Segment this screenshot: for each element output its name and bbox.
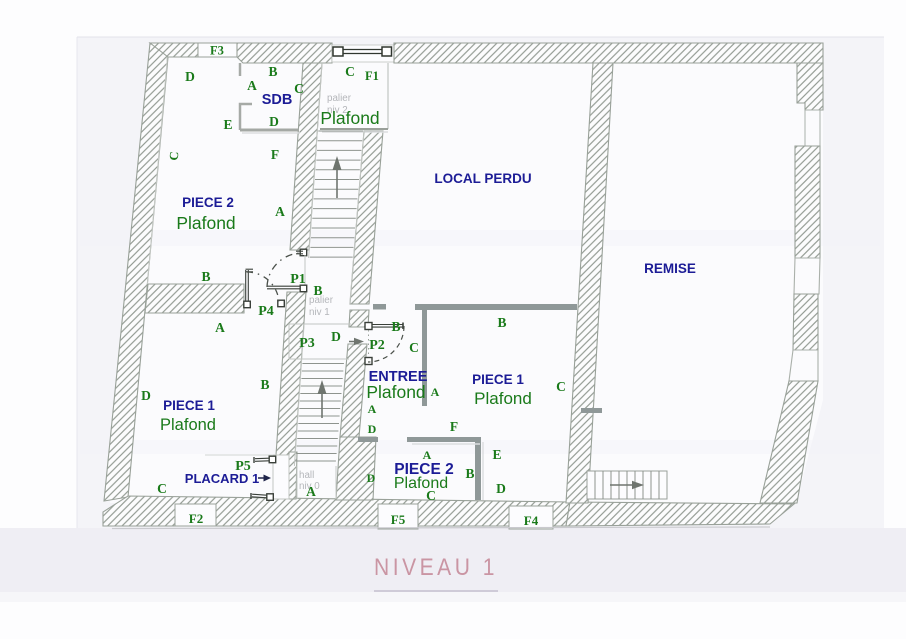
svg-text:A: A — [431, 385, 440, 399]
svg-text:palier: palier — [327, 93, 352, 104]
svg-text:C: C — [556, 379, 566, 394]
svg-text:REMISE: REMISE — [644, 261, 696, 276]
svg-text:SDB: SDB — [262, 92, 293, 108]
svg-text:NIVEAU 1: NIVEAU 1 — [374, 554, 498, 581]
svg-text:D: D — [269, 114, 279, 129]
svg-text:A: A — [423, 448, 432, 462]
svg-text:D: D — [331, 329, 341, 344]
svg-text:E: E — [492, 447, 501, 462]
svg-text:F4: F4 — [524, 513, 539, 528]
svg-text:hall: hall — [299, 470, 314, 481]
svg-text:Plafond: Plafond — [474, 389, 532, 408]
svg-text:P5: P5 — [235, 459, 251, 474]
svg-text:C: C — [426, 488, 436, 503]
svg-text:B: B — [268, 64, 277, 79]
svg-text:Plafond: Plafond — [394, 475, 448, 492]
svg-text:niv 1: niv 1 — [309, 307, 330, 318]
svg-text:F1: F1 — [365, 69, 379, 83]
svg-text:Plafond: Plafond — [320, 108, 379, 128]
svg-text:Plafond: Plafond — [176, 213, 235, 233]
svg-text:A: A — [368, 402, 377, 416]
svg-text:B: B — [201, 269, 210, 284]
svg-text:A: A — [275, 204, 285, 219]
svg-text:C: C — [345, 64, 355, 79]
svg-text:C: C — [409, 340, 419, 355]
svg-text:D: D — [367, 471, 376, 485]
svg-text:C: C — [294, 81, 304, 96]
svg-text:LOCAL PERDU: LOCAL PERDU — [434, 171, 531, 186]
svg-text:B: B — [465, 466, 474, 481]
svg-text:B: B — [391, 319, 400, 334]
svg-text:PIECE 1: PIECE 1 — [472, 372, 524, 387]
svg-text:P2: P2 — [369, 338, 385, 353]
svg-text:B: B — [497, 315, 506, 330]
svg-text:C: C — [157, 481, 167, 496]
svg-text:D: D — [185, 69, 195, 84]
svg-text:F5: F5 — [391, 512, 406, 527]
svg-text:A: A — [306, 484, 316, 499]
svg-text:Plafond: Plafond — [160, 416, 216, 434]
svg-text:F: F — [450, 419, 458, 434]
svg-text:PIECE 2: PIECE 2 — [182, 195, 234, 210]
svg-text:F3: F3 — [210, 44, 224, 58]
svg-text:E: E — [223, 117, 232, 132]
svg-text:Plafond: Plafond — [366, 382, 425, 402]
svg-text:F: F — [271, 147, 279, 162]
svg-text:A: A — [215, 320, 225, 335]
svg-text:B: B — [260, 377, 269, 392]
svg-text:P4: P4 — [258, 304, 274, 319]
svg-text:A: A — [247, 78, 257, 93]
svg-text:D: D — [368, 422, 377, 436]
svg-text:P3: P3 — [299, 336, 315, 351]
svg-text:P1: P1 — [290, 272, 306, 287]
svg-text:C: C — [167, 151, 182, 161]
svg-text:PIECE 1: PIECE 1 — [163, 398, 215, 413]
svg-text:D: D — [496, 481, 506, 496]
svg-text:B: B — [313, 283, 322, 298]
svg-text:D: D — [141, 388, 151, 403]
svg-text:F2: F2 — [189, 511, 203, 526]
